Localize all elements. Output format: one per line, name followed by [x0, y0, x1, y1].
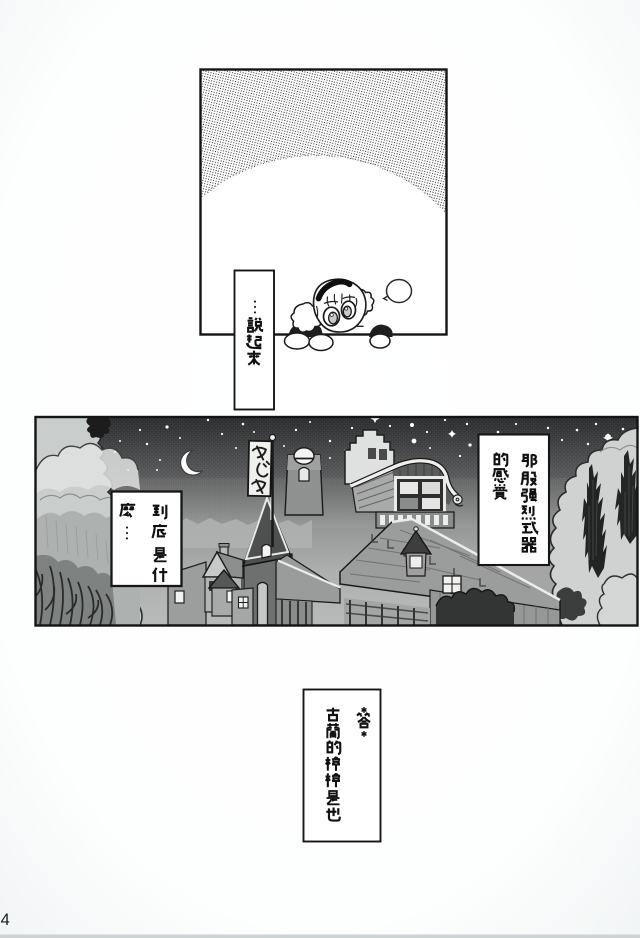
svg-text:24: 24: [0, 911, 10, 929]
